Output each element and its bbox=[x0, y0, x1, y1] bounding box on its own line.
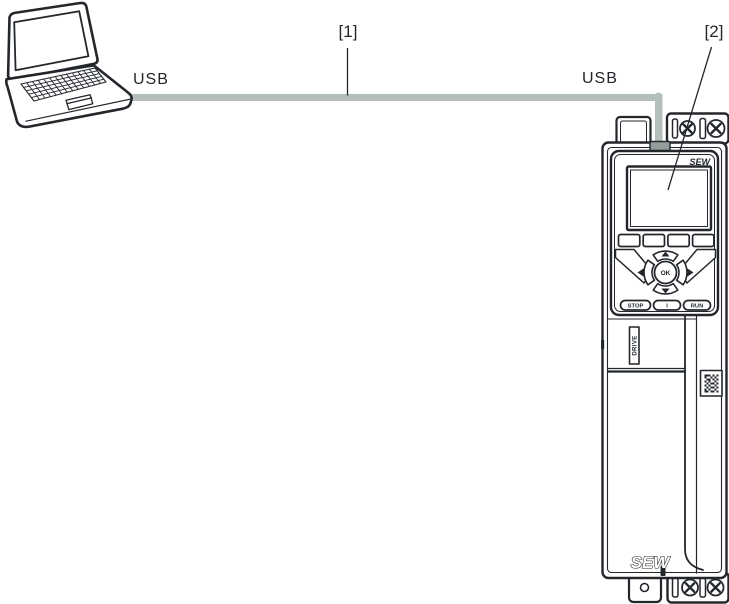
laptop-icon bbox=[6, 3, 131, 127]
left-edge-notch bbox=[601, 340, 604, 349]
screw-icon bbox=[680, 121, 695, 136]
callout-1-label: [1] bbox=[330, 22, 366, 42]
top-mounting-bracket bbox=[667, 114, 729, 144]
keypad: SEW OK bbox=[611, 151, 718, 315]
run-button-label: RUN bbox=[691, 304, 704, 310]
inverter-device: SEW OK bbox=[601, 96, 729, 603]
usb-label-left: USB bbox=[133, 71, 169, 89]
usb-cable bbox=[128, 98, 659, 147]
diagram-drawing: SEW OK bbox=[0, 0, 729, 604]
keypad-display bbox=[627, 167, 711, 231]
screw-icon bbox=[708, 120, 725, 137]
screw-icon bbox=[682, 580, 698, 596]
stop-button-label: STOP bbox=[628, 304, 644, 310]
qr-code-icon bbox=[701, 371, 723, 397]
callout-2-label: [2] bbox=[696, 22, 729, 42]
usb-label-right: USB bbox=[582, 70, 618, 88]
ok-button-label: OK bbox=[661, 270, 671, 277]
drive-label-text: DRIVE bbox=[633, 335, 639, 355]
bottom-brand-logo: SEW bbox=[631, 553, 672, 572]
drive-label: DRIVE bbox=[630, 327, 640, 364]
screw-icon bbox=[708, 580, 724, 596]
diagram-canvas: SEW OK bbox=[0, 0, 729, 604]
